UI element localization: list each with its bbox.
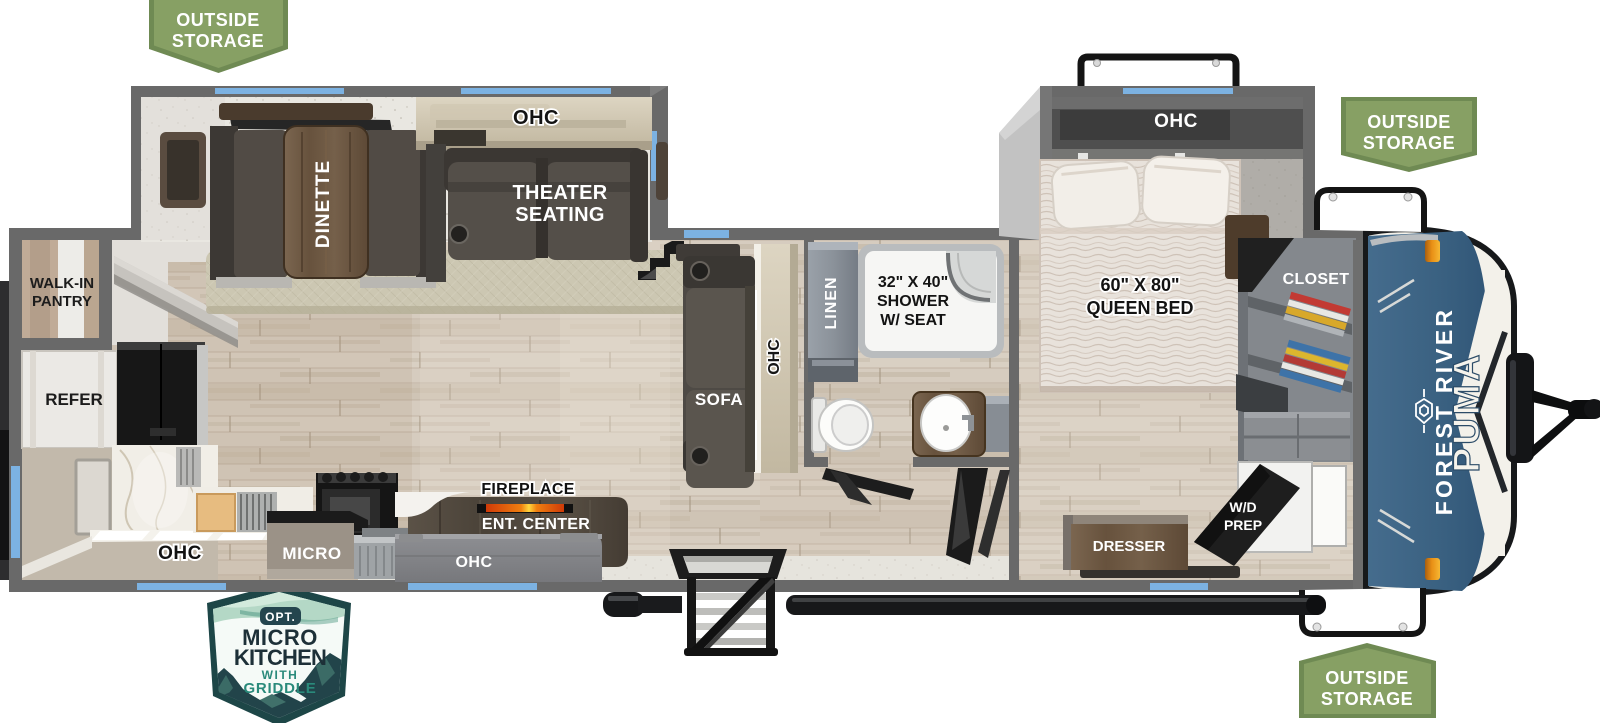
svg-text:GRIDDLE: GRIDDLE <box>243 680 316 697</box>
svg-text:OHC: OHC <box>766 339 783 375</box>
svg-text:FIREPLACE: FIREPLACE <box>481 481 574 498</box>
svg-text:W/ SEAT: W/ SEAT <box>880 312 946 329</box>
svg-text:LINEN: LINEN <box>823 277 840 330</box>
svg-text:PANTRY: PANTRY <box>32 293 92 310</box>
svg-text:STORAGE: STORAGE <box>1321 689 1413 709</box>
svg-text:SEATING: SEATING <box>515 204 605 226</box>
svg-text:REFER: REFER <box>45 390 103 409</box>
svg-text:SHOWER: SHOWER <box>877 293 949 310</box>
svg-text:OPT.: OPT. <box>265 610 296 624</box>
svg-text:STORAGE: STORAGE <box>172 31 264 51</box>
svg-text:QUEEN BED: QUEEN BED <box>1086 298 1193 318</box>
svg-text:OHC: OHC <box>1154 111 1198 132</box>
svg-text:WALK-IN: WALK-IN <box>30 275 94 292</box>
svg-text:DRESSER: DRESSER <box>1093 538 1166 555</box>
svg-text:W/D: W/D <box>1229 499 1256 515</box>
svg-text:OHC: OHC <box>513 107 559 129</box>
svg-text:OUTSIDE: OUTSIDE <box>176 10 260 30</box>
svg-text:OUTSIDE: OUTSIDE <box>1367 112 1451 132</box>
svg-text:KITCHEN: KITCHEN <box>234 645 326 670</box>
svg-text:PREP: PREP <box>1224 517 1262 533</box>
svg-text:OHC: OHC <box>158 543 202 564</box>
svg-text:32" X 40": 32" X 40" <box>878 274 948 291</box>
svg-text:DINETTE: DINETTE <box>313 160 334 248</box>
svg-text:ENT. CENTER: ENT. CENTER <box>482 516 590 533</box>
svg-text:MICRO: MICRO <box>282 544 341 563</box>
svg-text:OUTSIDE: OUTSIDE <box>1325 668 1409 688</box>
svg-text:PUMA: PUMA <box>1446 352 1487 473</box>
svg-text:SOFA: SOFA <box>695 390 743 409</box>
svg-text:CLOSET: CLOSET <box>1283 271 1350 288</box>
svg-text:STORAGE: STORAGE <box>1363 133 1455 153</box>
svg-text:THEATER: THEATER <box>512 182 607 204</box>
svg-text:OHC: OHC <box>455 554 492 571</box>
svg-text:60" X 80": 60" X 80" <box>1100 275 1179 295</box>
